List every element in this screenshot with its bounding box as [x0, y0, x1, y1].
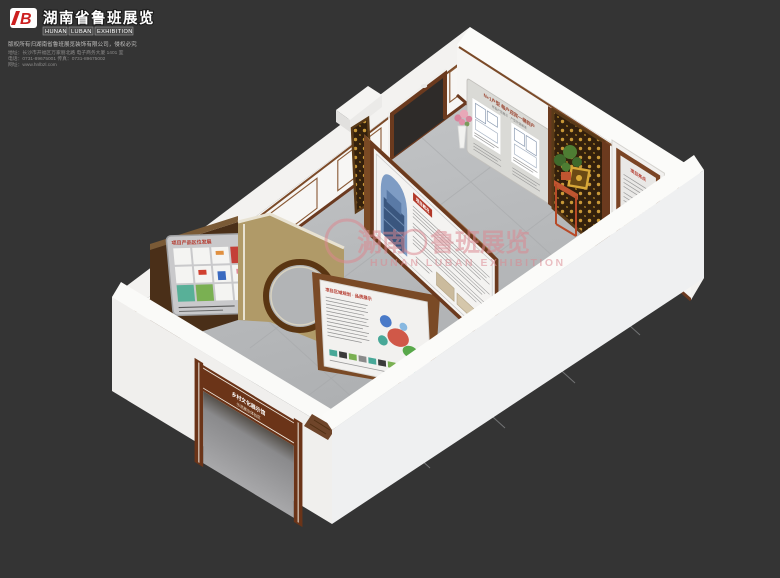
svg-text:LUBAN: LUBAN	[71, 29, 92, 35]
watermark-cn-left: 湖南	[357, 229, 407, 257]
exhibition-render: N+1户型 每户迎宾一梯到户 样板户型展示 · 户型价值解读	[0, 0, 780, 578]
company-name-en: HUNAN LUBAN EXHIBITION	[43, 27, 133, 35]
company-name: 湖南省鲁班展览	[43, 9, 155, 27]
copyright-tagline: 版权所有归湖南省鲁班展览装饰有限公司，侵权必究	[8, 40, 137, 48]
svg-text:HUNAN: HUNAN	[45, 29, 67, 35]
watermark-cn-right: 鲁班展览	[430, 228, 530, 257]
watermark-en: HUNAN LUBAN EXHIBITION	[370, 257, 566, 269]
logo-mark: B	[10, 8, 37, 28]
lattice-emblem	[569, 168, 590, 189]
contact-address: 地址：长沙市开福区万家丽北路 电子商务大厦 1401 室	[8, 49, 124, 56]
svg-text:EXHIBITION: EXHIBITION	[97, 29, 133, 35]
render-canvas: N+1户型 每户迎宾一梯到户 样板户型展示 · 户型价值解读	[0, 0, 780, 578]
logo-letter: B	[20, 11, 32, 28]
contact-phone: 电话：0731-89675001 传真：0731-89675002	[8, 55, 106, 62]
contact-website: 网址：www.hnlbzl.com	[8, 61, 57, 68]
spotlight	[421, 84, 427, 88]
